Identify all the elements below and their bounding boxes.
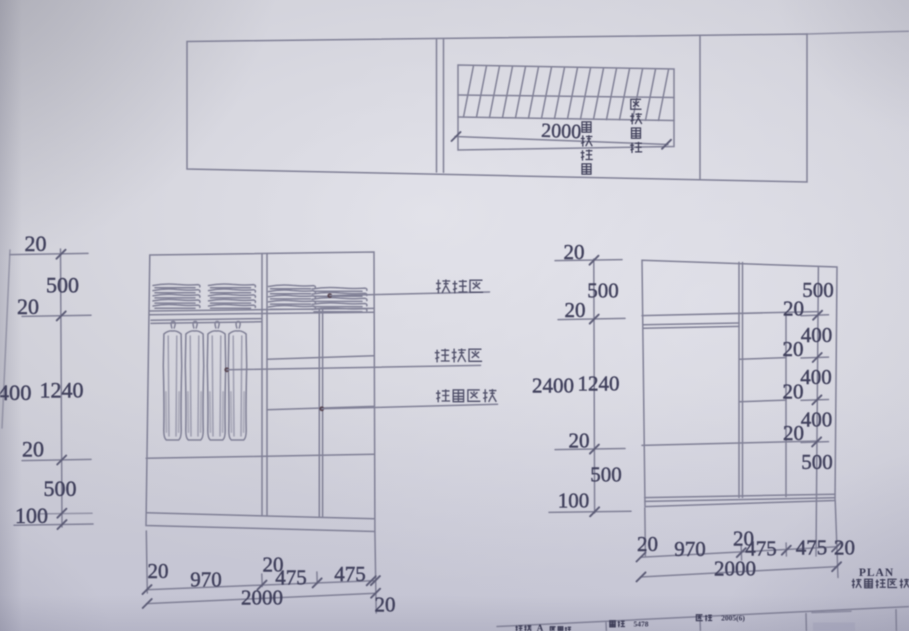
svg-text:20: 20 [17, 294, 39, 319]
svg-text:5478: 5478 [634, 620, 649, 629]
svg-text:20: 20 [375, 593, 396, 617]
svg-text:500: 500 [801, 450, 833, 474]
svg-text:970: 970 [674, 537, 706, 561]
svg-text:20: 20 [783, 297, 804, 321]
svg-text:20: 20 [22, 437, 44, 462]
svg-text:475: 475 [334, 562, 366, 586]
svg-text:20: 20 [148, 559, 169, 583]
svg-text:2000: 2000 [241, 586, 283, 610]
svg-text:400: 400 [800, 365, 832, 389]
svg-text:2005(6): 2005(6) [721, 614, 745, 623]
svg-text:2400: 2400 [0, 380, 32, 405]
svg-text:970: 970 [190, 568, 222, 592]
svg-text:20: 20 [834, 536, 855, 560]
svg-text:20: 20 [565, 298, 586, 322]
svg-text:500: 500 [44, 476, 77, 501]
svg-text:400: 400 [801, 323, 833, 347]
svg-text:100: 100 [558, 489, 590, 513]
svg-text:20: 20 [564, 240, 585, 264]
svg-text:20: 20 [783, 337, 804, 361]
svg-text:500: 500 [590, 463, 622, 487]
svg-text:20: 20 [783, 421, 804, 445]
svg-text:500: 500 [587, 279, 619, 303]
svg-text:500: 500 [802, 278, 834, 302]
svg-text:20: 20 [783, 380, 804, 404]
svg-text:2400: 2400 [532, 374, 574, 398]
svg-text:1240: 1240 [40, 378, 84, 403]
svg-text:20: 20 [569, 429, 590, 453]
svg-text:PLAN: PLAN [859, 567, 894, 579]
svg-text:A: A [537, 623, 544, 631]
svg-text:20: 20 [637, 532, 658, 556]
svg-text:475: 475 [796, 536, 828, 560]
svg-text:400: 400 [801, 408, 833, 432]
svg-text:2000: 2000 [541, 120, 582, 143]
svg-text:1240: 1240 [578, 372, 620, 396]
svg-text:500: 500 [46, 273, 79, 298]
svg-text:20: 20 [25, 231, 47, 256]
svg-text:100: 100 [15, 503, 48, 528]
svg-text:2000: 2000 [714, 557, 756, 581]
